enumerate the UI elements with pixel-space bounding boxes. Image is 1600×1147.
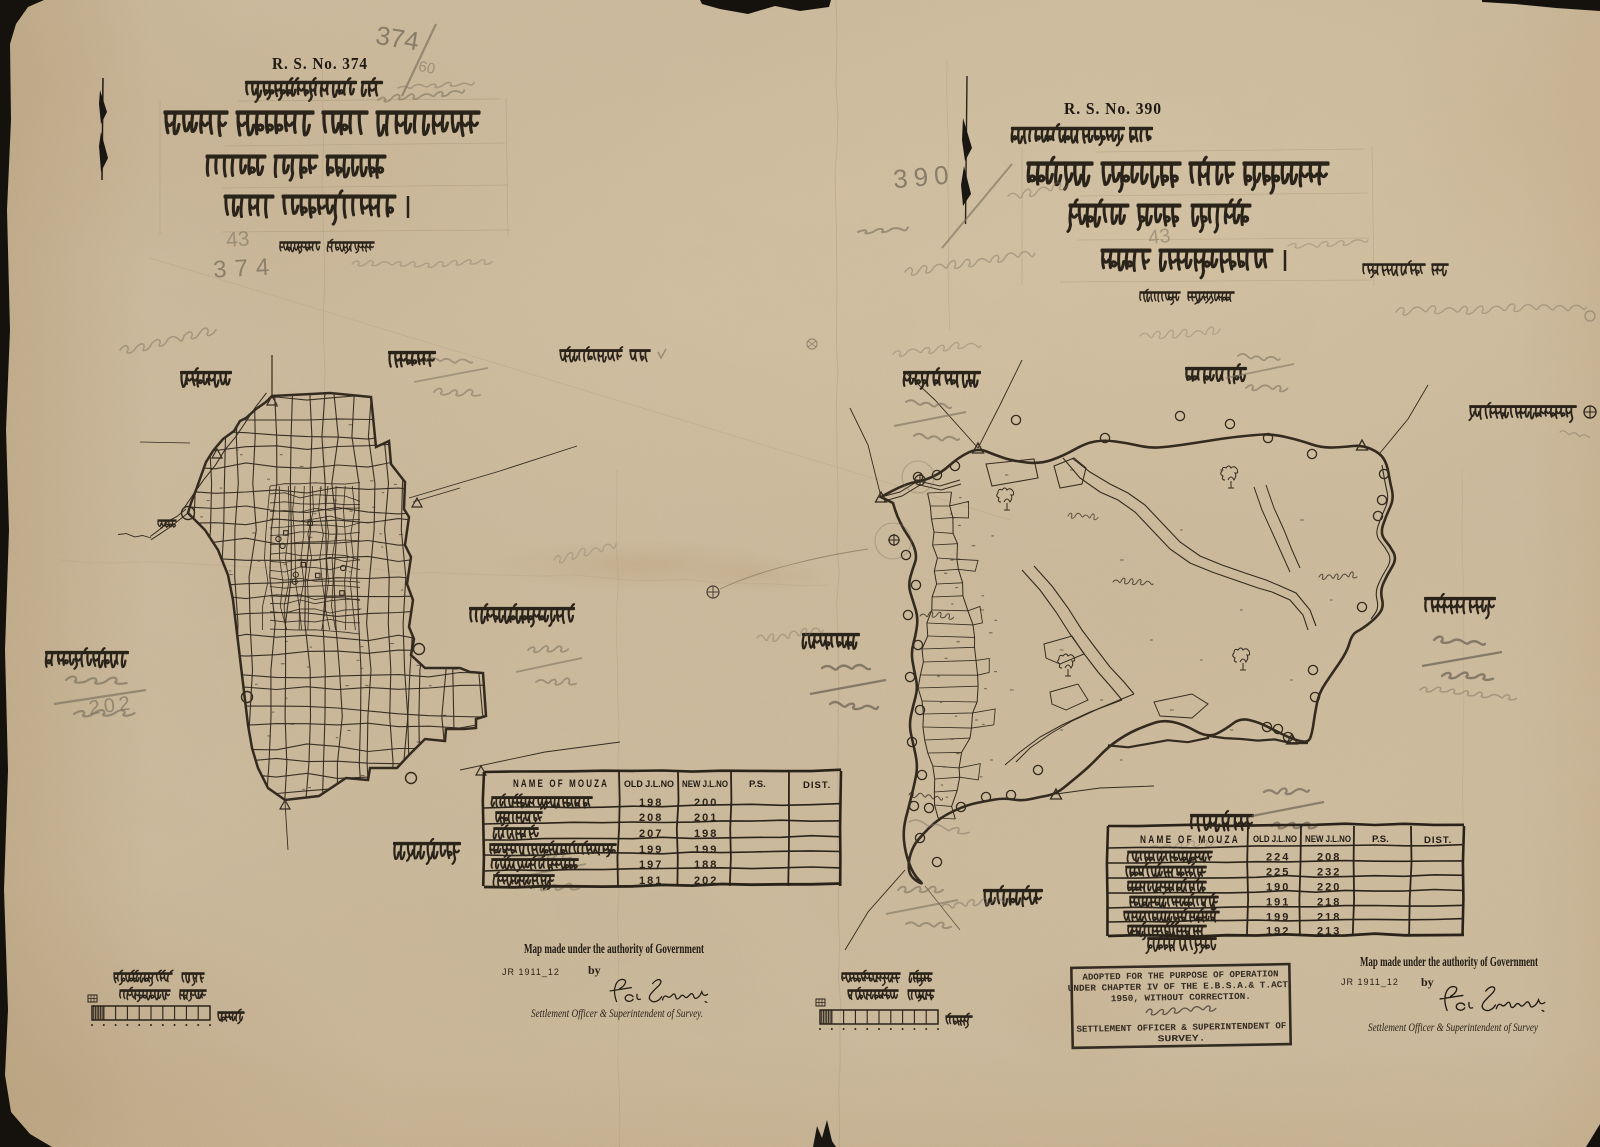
svg-text:60: 60 xyxy=(417,58,437,78)
svg-text:43: 43 xyxy=(225,227,250,252)
svg-text:43: 43 xyxy=(1147,225,1171,249)
svg-text:192: 192 xyxy=(1266,926,1290,938)
svg-text:R. S. No. 390: R. S. No. 390 xyxy=(1064,99,1162,118)
svg-text:SURVEY.: SURVEY. xyxy=(1158,1034,1206,1045)
svg-text:OLD J.L.NO: OLD J.L.NO xyxy=(1253,834,1297,844)
svg-text:198: 198 xyxy=(694,828,718,840)
svg-text:225: 225 xyxy=(1266,867,1290,879)
svg-text:202: 202 xyxy=(694,875,718,887)
svg-text:Settlement Officer & Superinte: Settlement Officer & Superintendent of S… xyxy=(531,1008,703,1020)
svg-text:NEW J.L.NO: NEW J.L.NO xyxy=(1305,834,1351,844)
svg-text:191: 191 xyxy=(1266,897,1290,909)
svg-text:by: by xyxy=(1421,975,1434,989)
svg-text:JR 1911_12: JR 1911_12 xyxy=(1341,977,1399,987)
svg-text:199: 199 xyxy=(1266,912,1290,924)
svg-text:201: 201 xyxy=(694,812,718,824)
svg-text:JR 1911_12: JR 1911_12 xyxy=(502,967,560,977)
svg-text:213: 213 xyxy=(1317,926,1341,938)
svg-text:Map made under the authority o: Map made under the authority of Governme… xyxy=(1360,955,1538,970)
svg-text:P.S.: P.S. xyxy=(749,779,766,790)
svg-text:OLD J.L.NO: OLD J.L.NO xyxy=(624,779,674,789)
svg-text:218: 218 xyxy=(1317,897,1341,909)
svg-text:199: 199 xyxy=(639,844,663,856)
svg-text:224: 224 xyxy=(1266,852,1290,864)
svg-text:190: 190 xyxy=(1266,882,1290,894)
svg-text:218: 218 xyxy=(1317,912,1341,924)
svg-text:220: 220 xyxy=(1317,882,1341,894)
svg-text:181: 181 xyxy=(639,875,663,887)
svg-text:374: 374 xyxy=(213,253,278,283)
svg-text:199: 199 xyxy=(694,844,718,856)
svg-text:197: 197 xyxy=(639,859,663,871)
svg-text:NEW J.L.NO: NEW J.L.NO xyxy=(682,779,728,789)
svg-text:NAME OF MOUZA: NAME OF MOUZA xyxy=(1140,834,1240,846)
svg-text:by: by xyxy=(588,963,601,977)
svg-text:Map made under the authority o: Map made under the authority of Governme… xyxy=(524,942,704,957)
svg-text:207: 207 xyxy=(639,828,663,840)
svg-text:198: 198 xyxy=(639,797,663,809)
svg-text:DIST.: DIST. xyxy=(1424,835,1452,846)
svg-text:R. S. No. 374: R. S. No. 374 xyxy=(272,54,368,73)
svg-text:208: 208 xyxy=(1317,852,1341,864)
svg-text:232: 232 xyxy=(1317,867,1341,879)
svg-text:208: 208 xyxy=(639,812,663,824)
svg-text:Settlement Officer & Superinte: Settlement Officer & Superintendent of S… xyxy=(1368,1022,1539,1034)
svg-text:188: 188 xyxy=(694,859,718,871)
svg-text:P.S.: P.S. xyxy=(1372,834,1389,845)
svg-text:NAME OF MOUZA: NAME OF MOUZA xyxy=(513,778,609,790)
svg-text:DIST.: DIST. xyxy=(803,780,831,791)
svg-text:390: 390 xyxy=(892,159,956,194)
svg-text:200: 200 xyxy=(694,797,718,809)
